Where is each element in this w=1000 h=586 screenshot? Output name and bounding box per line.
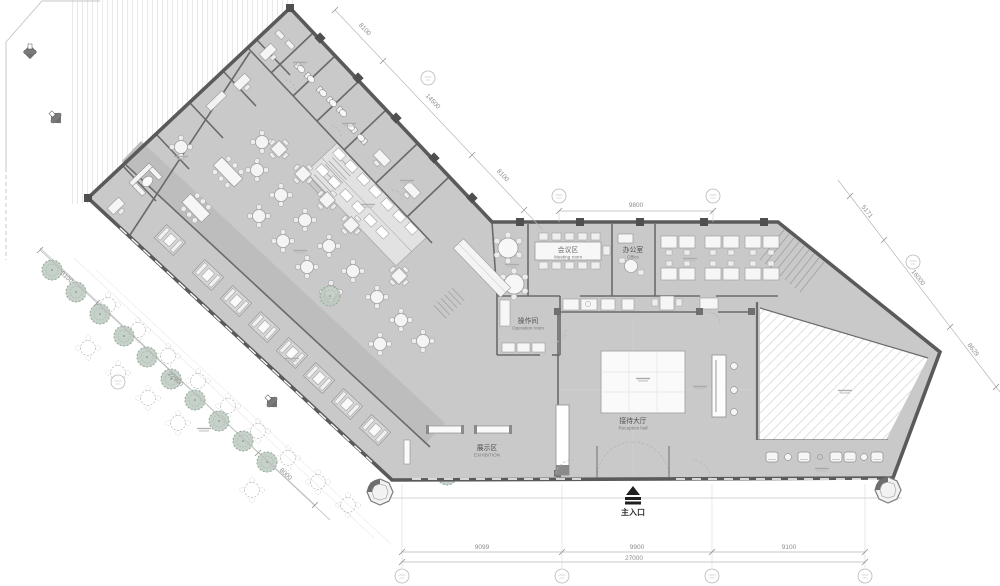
svg-text:操作间: 操作间 <box>518 316 539 325</box>
entrance-arrow-icon <box>626 486 640 495</box>
svg-text:展示区: 展示区 <box>477 444 498 452</box>
central-display-table <box>601 351 685 413</box>
grid-bubble <box>552 189 566 203</box>
svg-text:Reception hall: Reception hall <box>618 426 647 431</box>
grid-bubble <box>555 569 569 583</box>
svg-text:Operation room: Operation room <box>512 326 544 331</box>
service-counter <box>712 355 726 417</box>
floor-plan-drawing: 主入口 会议区 Meeting room 办公室 Office 操作间 Oper… <box>0 0 1000 586</box>
svg-text:Meeting room: Meeting room <box>554 255 582 260</box>
grid-bubble <box>421 71 435 85</box>
dim-sw-3: 8000 <box>278 467 294 482</box>
grid-bubble <box>906 255 920 269</box>
dim-right-1: 5171 <box>860 204 875 220</box>
corner-turret <box>875 477 901 503</box>
main-entrance-label: 主入口 <box>621 507 645 517</box>
grid-bubble <box>111 375 125 389</box>
site-pier <box>261 391 282 412</box>
display-wall <box>556 405 569 475</box>
grid-bubble <box>706 189 720 203</box>
svg-text:接待大厅: 接待大厅 <box>619 416 646 425</box>
meeting-room-label: 会议区 Meeting room <box>554 245 582 260</box>
svg-text:办公室: 办公室 <box>623 245 644 254</box>
site-pier <box>45 107 66 128</box>
grid-bubble <box>858 569 872 583</box>
svg-text:Office: Office <box>627 255 639 260</box>
svg-text:EXHIBITION: EXHIBITION <box>474 453 500 458</box>
grid-bubble <box>395 569 409 583</box>
waiting-lounge <box>757 440 888 477</box>
reception-hall-label: 接待大厅 Reception hall <box>618 416 647 431</box>
exhibition-label: 展示区 EXHIBITION <box>474 444 500 458</box>
grid-bubble <box>705 569 719 583</box>
site-pier <box>23 44 37 59</box>
indoor-plant <box>320 286 340 306</box>
dim-bottom-3: 9100 <box>782 544 797 551</box>
dim-top: 9800 <box>629 202 644 209</box>
dim-ne-2: 14500 <box>424 93 442 111</box>
dim-bottom-1: 9099 <box>475 544 490 551</box>
floor-plan-canvas[interactable]: 主入口 会议区 Meeting room 办公室 Office 操作间 Oper… <box>0 0 1000 586</box>
dim-ne-1: 8100 <box>357 22 372 38</box>
dimension-top-center: 9800 <box>552 189 720 222</box>
main-entrance-marker: 主入口 <box>621 486 645 517</box>
dim-bottom-total: 27000 <box>625 555 643 562</box>
svg-text:会议区: 会议区 <box>558 245 579 254</box>
corner-turret <box>367 479 393 505</box>
dim-bottom-2: 9900 <box>630 544 645 551</box>
